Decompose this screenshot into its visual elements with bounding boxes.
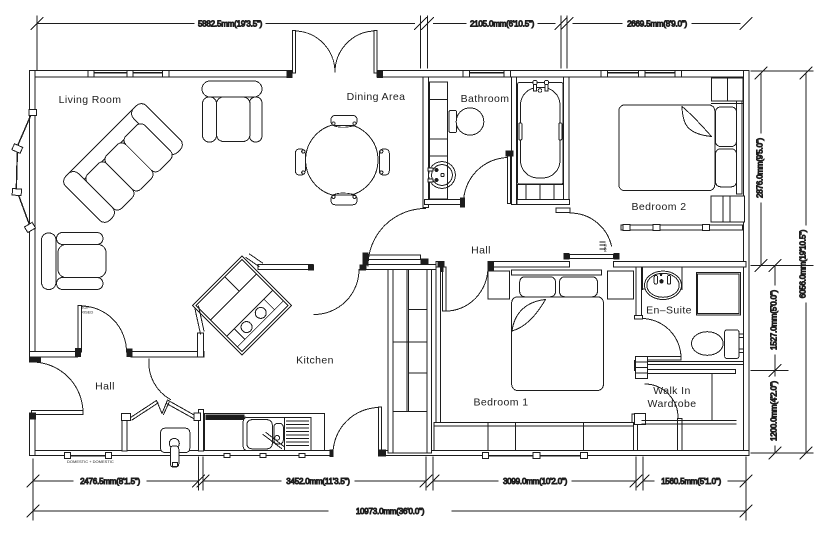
svg-text:1527.0mm(5'0.0"): 1527.0mm(5'0.0") (770, 290, 779, 350)
svg-text:Kitchen: Kitchen (296, 355, 334, 367)
svg-text:SHDOW BESIDE: SHDOW BESIDE (207, 415, 247, 420)
svg-text:Walk In: Walk In (653, 385, 690, 397)
svg-text:Dining Area: Dining Area (347, 91, 406, 103)
svg-text:1560.5mm(5'1.0"): 1560.5mm(5'1.0") (661, 477, 721, 486)
svg-text:2876.0mm(9'5.0"): 2876.0mm(9'5.0") (756, 138, 765, 198)
svg-text:6056.0mm(19'10.5"): 6056.0mm(19'10.5") (799, 229, 808, 298)
svg-text:2105.0mm(6'10.5"): 2105.0mm(6'10.5") (470, 20, 535, 29)
svg-text:3099.0mm(10'2.0"): 3099.0mm(10'2.0") (503, 477, 568, 486)
svg-text:3452.0mm(11'3.5"): 3452.0mm(11'3.5") (286, 477, 350, 486)
svg-text:5882.5mm(19'3.5"): 5882.5mm(19'3.5") (198, 20, 263, 29)
svg-text:1200.0mm(4'2.0"): 1200.0mm(4'2.0") (770, 381, 779, 441)
svg-text:10973.0mm(36'0.0"): 10973.0mm(36'0.0") (356, 507, 425, 516)
svg-text:Bedroom 2: Bedroom 2 (632, 201, 687, 213)
svg-text:DOMESTIC + DOMESTIC: DOMESTIC + DOMESTIC (67, 459, 114, 464)
svg-text:Living Room: Living Room (59, 94, 122, 106)
svg-text:En–Suite: En–Suite (646, 305, 692, 317)
svg-text:Bathroom: Bathroom (461, 93, 510, 105)
svg-text:2669.5mm(8'9.0"): 2669.5mm(8'9.0") (627, 20, 687, 29)
svg-text:2476.5mm(8'1.5"): 2476.5mm(8'1.5") (80, 477, 140, 486)
svg-text:Hall: Hall (95, 381, 115, 393)
svg-text:Wardrobe: Wardrobe (648, 398, 697, 410)
svg-text:RISED: RISED (81, 310, 93, 315)
svg-text:Hall: Hall (471, 245, 491, 257)
svg-text:Bedroom 1: Bedroom 1 (474, 397, 529, 409)
